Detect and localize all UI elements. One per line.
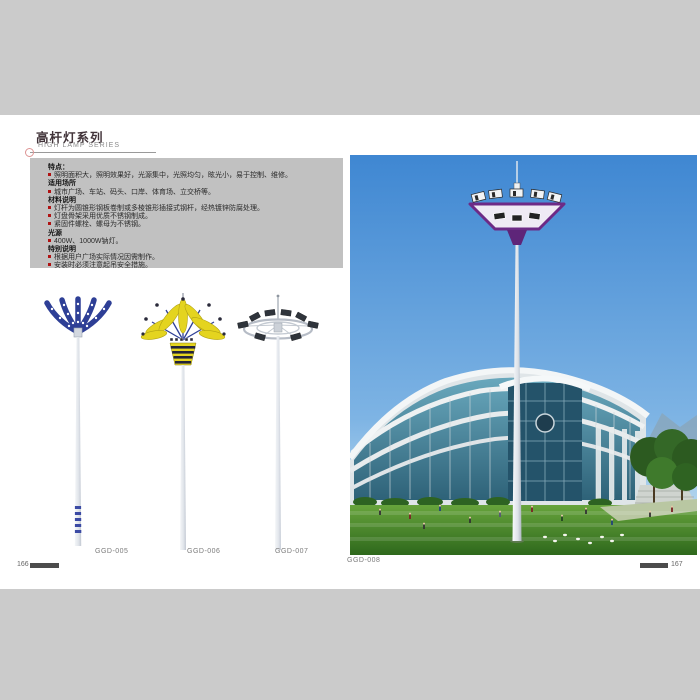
info-bullet-row: 安装时必须注意起吊安全措施。 bbox=[48, 262, 335, 270]
bullet-icon bbox=[48, 263, 51, 266]
header-rule bbox=[30, 152, 156, 153]
info-heading: 特点： bbox=[48, 164, 335, 172]
product-model-label: GGD-006 bbox=[187, 548, 220, 555]
info-bullet-text: 根据用户广场实际情况因需制作。 bbox=[54, 254, 159, 261]
product-figure-ggd-006 bbox=[140, 290, 232, 552]
info-heading: 光源 bbox=[48, 230, 335, 238]
photo-model-label: GGD-008 bbox=[347, 557, 380, 564]
info-heading: 特别说明 bbox=[48, 246, 335, 254]
info-bullet-text: 灯盘骨架采用优质不锈钢制成。 bbox=[54, 213, 152, 220]
lamp-ggd-005-image bbox=[40, 296, 120, 548]
info-bullet-text: 照明面积大，照明效果好，光源集中，光照均匀，眩光小，易于控制、维修。 bbox=[54, 172, 292, 179]
info-bullet-row: 照明面积大，照明效果好，光源集中，光照均匀，眩光小，易于控制、维修。 bbox=[48, 172, 335, 180]
catalog-page: 高杆灯系列 HIGH LAMP SERIES 特点： 照明面积大，照明效果好，光… bbox=[0, 115, 700, 589]
info-bullet-row: 400W、1000W钠灯。 bbox=[48, 238, 335, 246]
ring-icon bbox=[25, 148, 34, 157]
product-model-label: GGD-005 bbox=[95, 548, 128, 555]
spec-info-box: 特点： 照明面积大，照明效果好，光源集中，光照均匀，眩光小，易于控制、维修。 适… bbox=[30, 158, 343, 268]
product-model-label: GGD-007 bbox=[275, 548, 308, 555]
info-bullet-text: 400W、1000W钠灯。 bbox=[54, 238, 122, 245]
info-bullet-row: 灯杆为圆锥形钢板卷制或多棱锥形插接式钢杆，经热镀锌防腐处理。 bbox=[48, 205, 335, 213]
bullet-icon bbox=[48, 255, 51, 258]
info-bullet-row: 紧固件螺栓、螺母为不锈钢。 bbox=[48, 221, 335, 229]
bullet-icon bbox=[48, 190, 51, 193]
lamp-ggd-006-image bbox=[140, 290, 232, 552]
info-heading: 适用场所 bbox=[48, 180, 335, 188]
lamp-ggd-007-image bbox=[233, 292, 323, 552]
page-number-right: 167 bbox=[671, 561, 683, 568]
info-bullet-row: 城市广场、车站、码头、口岸、体育场、立交桥等。 bbox=[48, 189, 335, 197]
product-figure-ggd-007 bbox=[233, 292, 323, 552]
info-heading: 材料说明 bbox=[48, 197, 335, 205]
page-number-left: 166 bbox=[17, 561, 29, 568]
info-bullet-text: 安装时必须注意起吊安全措施。 bbox=[54, 262, 152, 269]
page-subtitle: HIGH LAMP SERIES bbox=[38, 142, 120, 149]
bullet-icon bbox=[48, 239, 51, 242]
bullet-icon bbox=[48, 222, 51, 225]
footer-bar-left bbox=[30, 563, 59, 568]
info-bullet-text: 城市广场、车站、码头、口岸、体育场、立交桥等。 bbox=[54, 189, 215, 196]
product-figure-ggd-005 bbox=[40, 296, 120, 548]
bullet-icon bbox=[48, 214, 51, 217]
footer-bar-right bbox=[640, 563, 668, 568]
info-bullet-text: 灯杆为圆锥形钢板卷制或多棱锥形插接式钢杆，经热镀锌防腐处理。 bbox=[54, 205, 264, 212]
info-bullet-text: 紧固件螺栓、螺母为不锈钢。 bbox=[54, 221, 145, 228]
catalog-spread: 高杆灯系列 HIGH LAMP SERIES 特点： 照明面积大，照明效果好，光… bbox=[0, 0, 700, 700]
photo-scene-image bbox=[350, 155, 697, 555]
bullet-icon bbox=[48, 206, 51, 209]
product-photo-ggd-008 bbox=[350, 155, 697, 555]
bullet-icon bbox=[48, 173, 51, 176]
